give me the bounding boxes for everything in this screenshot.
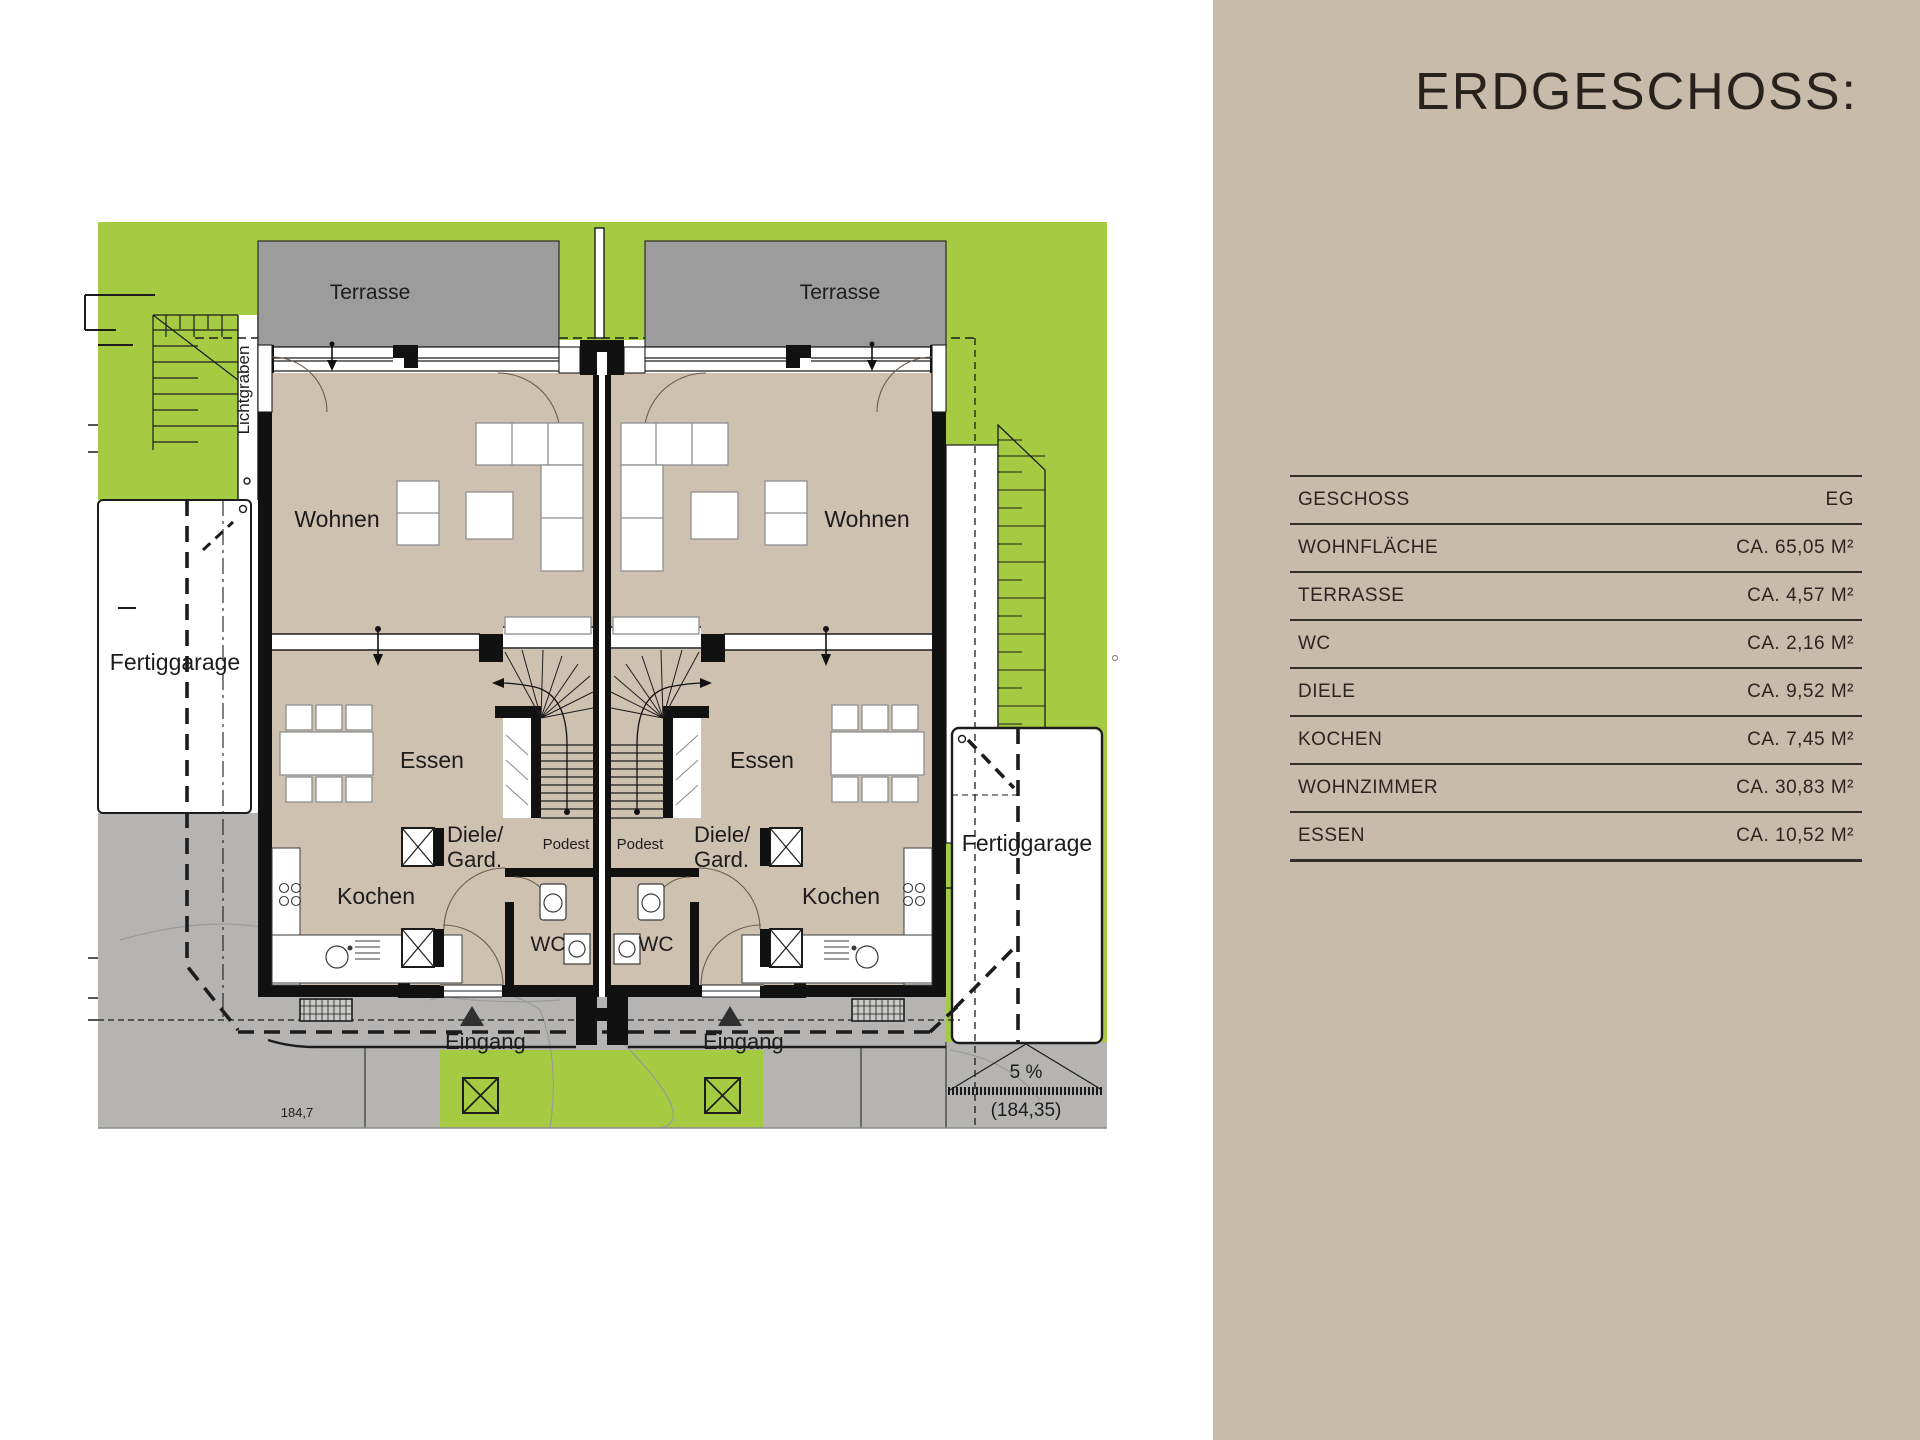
label-fertiggarage-left: Fertiggarage bbox=[110, 649, 240, 675]
table-row: DIELE CA. 9,52 M² bbox=[1290, 669, 1862, 717]
row-value: CA. 10,52 M² bbox=[1736, 825, 1854, 847]
row-value: CA. 30,83 M² bbox=[1736, 777, 1854, 799]
room-label-diele-left-2: Gard. bbox=[447, 847, 502, 872]
room-label-podest-left: Podest bbox=[543, 836, 591, 853]
page: { "panel": { "title": "ERDGESCHOSS:", "t… bbox=[0, 0, 1920, 1440]
room-label-diele-right-2: Gard. bbox=[694, 847, 749, 872]
row-value: CA. 4,57 M² bbox=[1747, 585, 1854, 607]
row-value: EG bbox=[1826, 489, 1854, 511]
table-row: ESSEN CA. 10,52 M² bbox=[1290, 813, 1862, 862]
label-fertiggarage-right: Fertiggarage bbox=[962, 830, 1092, 856]
row-label: WC bbox=[1298, 633, 1331, 655]
tree-marker-right bbox=[705, 1078, 740, 1113]
room-label-wc-right: WC bbox=[639, 933, 674, 956]
row-value: CA. 7,45 M² bbox=[1747, 729, 1854, 751]
room-label-essen-left: Essen bbox=[400, 747, 464, 773]
info-panel: ERDGESCHOSS: GESCHOSS EG WOHNFLÄCHE CA. … bbox=[1213, 0, 1920, 1440]
label-eingang-left: Eingang bbox=[445, 1029, 526, 1054]
row-label: WOHNFLÄCHE bbox=[1298, 537, 1438, 559]
room-label-wohnen-right: Wohnen bbox=[824, 506, 909, 532]
row-label: WOHNZIMMER bbox=[1298, 777, 1438, 799]
label-slope-percent: 5 % bbox=[1010, 1062, 1043, 1083]
room-label-podest-right: Podest bbox=[617, 836, 665, 853]
tree-marker-left bbox=[463, 1078, 498, 1113]
row-label: TERRASSE bbox=[1298, 585, 1404, 607]
row-label: GESCHOSS bbox=[1298, 489, 1410, 511]
table-row: KOCHEN CA. 7,45 M² bbox=[1290, 717, 1862, 765]
label-lichtgraben: Lichtgraben bbox=[234, 346, 253, 435]
dwelling-unit bbox=[258, 241, 599, 1045]
row-label: DIELE bbox=[1298, 681, 1355, 703]
row-value: CA. 2,16 M² bbox=[1747, 633, 1854, 655]
row-label: KOCHEN bbox=[1298, 729, 1382, 751]
room-label-wc-left: WC bbox=[531, 933, 566, 956]
room-label-diele-right-1: Diele/ bbox=[694, 822, 751, 847]
row-label: ESSEN bbox=[1298, 825, 1365, 847]
label-ground-level: 184,7 bbox=[281, 1105, 314, 1120]
table-row: WC CA. 2,16 M² bbox=[1290, 621, 1862, 669]
row-value: CA. 9,52 M² bbox=[1747, 681, 1854, 703]
page-title: ERDGESCHOSS: bbox=[1415, 66, 1858, 118]
label-eingang-right: Eingang bbox=[703, 1029, 784, 1054]
area-table: GESCHOSS EG WOHNFLÄCHE CA. 65,05 M² TERR… bbox=[1290, 475, 1862, 862]
table-row: TERRASSE CA. 4,57 M² bbox=[1290, 573, 1862, 621]
room-label-kochen-left: Kochen bbox=[337, 883, 415, 909]
room-label-diele-left-1: Diele/ bbox=[447, 822, 504, 847]
room-label-essen-right: Essen bbox=[730, 747, 794, 773]
room-label-kochen-right: Kochen bbox=[802, 883, 880, 909]
room-label-terrasse-left: Terrasse bbox=[330, 281, 411, 304]
table-row: WOHNFLÄCHE CA. 65,05 M² bbox=[1290, 525, 1862, 573]
room-label-terrasse-right: Terrasse bbox=[800, 281, 881, 304]
table-row: WOHNZIMMER CA. 30,83 M² bbox=[1290, 765, 1862, 813]
room-label-wohnen-left: Wohnen bbox=[294, 506, 379, 532]
label-level-value: (184,35) bbox=[991, 1100, 1062, 1121]
row-value: CA. 65,05 M² bbox=[1736, 537, 1854, 559]
table-row: GESCHOSS EG bbox=[1290, 477, 1862, 525]
